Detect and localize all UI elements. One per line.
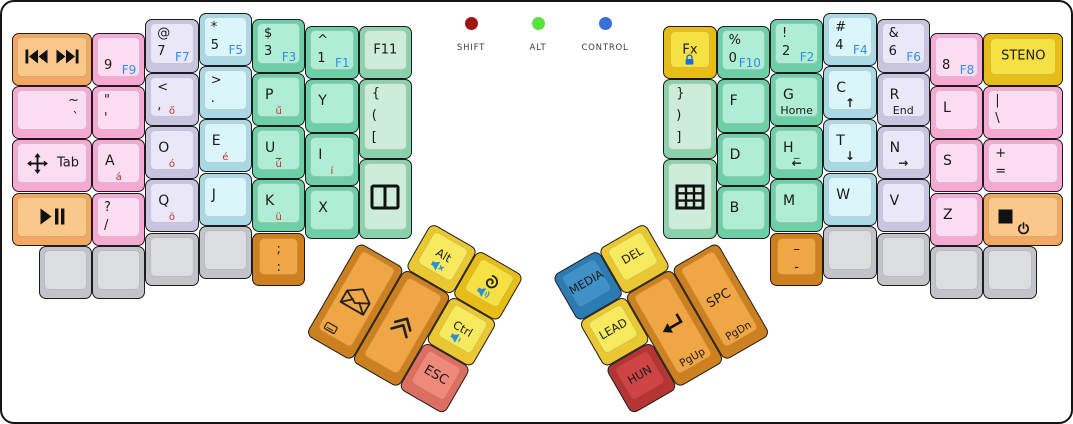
key-j-top: J — [204, 177, 247, 217]
lock-icon — [671, 54, 708, 66]
key-slash-top: ?/ — [97, 197, 140, 237]
key-6-top: &6F6 — [882, 23, 925, 63]
key-u-legend: _ — [258, 147, 299, 158]
key-p-top: Pű — [257, 77, 300, 117]
key-stop-power[interactable] — [983, 193, 1063, 246]
key-k[interactable]: Kü — [252, 179, 305, 232]
key-7-top: @7F7 — [150, 23, 193, 63]
key-comma-top: <,ő — [150, 77, 193, 117]
key-close-brackets-legend: ) — [676, 109, 681, 122]
key-1-legend: ^ — [317, 34, 328, 47]
key-8-legend: 8 — [942, 59, 950, 72]
key-6[interactable]: &6F6 — [877, 19, 930, 72]
key-stop-power-top — [988, 197, 1058, 237]
key-f-legend: F — [730, 94, 738, 108]
key-z-legend: Z — [943, 208, 953, 222]
key-g[interactable]: GHome — [770, 73, 823, 126]
key-b[interactable]: B — [717, 186, 770, 239]
key-c-legend: ↑ — [829, 97, 870, 109]
key-u[interactable]: U_ú — [252, 126, 305, 179]
key-semicolon[interactable]: ;: — [252, 233, 305, 286]
key-plus-legend: + — [995, 147, 1006, 160]
key-open-brackets-top: {([ — [364, 83, 407, 150]
key-z-top: Z — [935, 197, 978, 237]
key-j-legend: J — [212, 188, 216, 202]
key-pipe-top: |\ — [988, 90, 1058, 130]
key-plus[interactable]: += — [983, 139, 1063, 192]
key-y-legend: Y — [318, 94, 327, 108]
key-period-legend: > — [211, 74, 222, 87]
key-k-legend: K — [265, 194, 274, 208]
key-v-top: V — [882, 183, 925, 223]
key-e[interactable]: Eé — [199, 119, 252, 172]
key-j[interactable]: J — [199, 173, 252, 226]
key-blank-l2-top — [97, 250, 140, 290]
key-o[interactable]: Oó — [145, 126, 198, 179]
alt-led — [532, 17, 545, 30]
key-steno-top: STENO — [990, 38, 1056, 75]
key-i-top: Ií — [310, 137, 353, 177]
key-3-legend: 3 — [264, 45, 272, 58]
key-alt-top: Alt — [417, 230, 470, 282]
key-o-top: Oó — [150, 130, 193, 170]
key-period-legend: . — [211, 92, 215, 105]
key-d-legend: D — [730, 148, 741, 162]
key-p-legend: ű — [258, 107, 299, 117]
key-5-legend: 5 — [211, 39, 219, 52]
key-u-legend: ú — [258, 160, 299, 170]
key-4-top: #4F4 — [828, 17, 871, 57]
key-close-brackets-top: })] — [668, 83, 711, 150]
key-r[interactable]: REnd — [877, 73, 930, 126]
key-y[interactable]: Y — [305, 79, 358, 132]
key-semicolon-top: ;: — [259, 238, 298, 275]
key-c-top: C↑ — [828, 70, 871, 110]
key-grid[interactable] — [663, 159, 716, 239]
next-track-icon — [56, 49, 79, 64]
key-4[interactable]: #4F4 — [823, 13, 876, 66]
key-g-legend: Home — [776, 105, 817, 116]
key-h-legend: ← — [776, 157, 817, 169]
key-9[interactable]: 9F9 — [92, 33, 145, 86]
key-a-legend: á — [98, 173, 139, 183]
key-b-legend: B — [730, 201, 740, 215]
key-1[interactable]: ^1F1 — [305, 26, 358, 79]
key-blank-l1-top — [44, 250, 87, 290]
key-n-legend: N — [890, 141, 900, 155]
key-r-top: REnd — [882, 77, 925, 117]
key-c-legend: C — [836, 81, 846, 95]
key-comma-legend: ő — [151, 107, 192, 117]
key-g-legend: G — [783, 88, 794, 102]
key-6-legend: F6 — [906, 51, 921, 63]
key-v[interactable]: V — [877, 179, 930, 232]
key-0-legend: F10 — [739, 57, 761, 69]
key-del-legend: DEL — [614, 242, 652, 271]
key-blank-l1[interactable] — [39, 246, 92, 299]
key-blank-r1[interactable] — [823, 226, 876, 279]
key-close-brackets-legend: } — [676, 87, 684, 100]
key-k-top: Kü — [257, 183, 300, 223]
key-esc-legend: ESC — [417, 360, 456, 390]
grid-icon — [669, 164, 710, 229]
key-play-pause-top — [17, 197, 87, 237]
key-blank-l4-top — [204, 230, 247, 270]
keyboard-board: 9F9@7F7*5F5$3F3^1F1F11~`"'<,ő>.PűY{([Tab… — [2, 2, 1071, 422]
key-comma[interactable]: <,ő — [145, 73, 198, 126]
power-icon — [989, 223, 1057, 235]
key-l-top: L — [935, 90, 978, 130]
key-pipe[interactable]: |\ — [983, 86, 1063, 139]
key-w-legend: W — [836, 188, 850, 202]
key-f[interactable]: F — [717, 79, 770, 132]
key-blank-l2[interactable] — [92, 246, 145, 299]
key-0[interactable]: %0F10 — [717, 26, 770, 79]
key-blank-r3-top — [935, 250, 978, 290]
key-e-legend: E — [212, 134, 221, 148]
key-q-legend: ö — [151, 213, 192, 223]
key-blank-r4-top — [988, 250, 1031, 290]
key-a-top: Aá — [97, 143, 140, 183]
key-p[interactable]: Pű — [252, 73, 305, 126]
keyboard-layout-figure: 9F9@7F7*5F5$3F3^1F1F11~`"'<,ő>.PűY{([Tab… — [0, 0, 1073, 424]
key-debian-top — [463, 257, 516, 309]
key-s[interactable]: S — [930, 139, 983, 192]
key-9-legend: F9 — [122, 64, 137, 76]
key-blank-l3[interactable] — [145, 233, 198, 286]
key-1-legend: 1 — [317, 52, 325, 65]
key-t[interactable]: T↓ — [823, 119, 876, 172]
key-x[interactable]: X — [305, 186, 358, 239]
shift-led — [465, 17, 478, 30]
key-blank-l3-top — [150, 237, 193, 277]
key-lead-legend: LEAD — [594, 315, 632, 344]
key-f11[interactable]: F11 — [359, 26, 412, 79]
key-tilde-legend: ` — [73, 112, 80, 125]
key-q-legend: Q — [158, 194, 169, 208]
key-open-brackets-legend: ( — [372, 109, 377, 122]
key-plus-legend: = — [995, 165, 1006, 178]
key-quote-top: "' — [97, 90, 140, 130]
key-8-legend: F8 — [960, 64, 975, 76]
key-2-legend: ! — [782, 27, 787, 40]
key-u-top: U_ú — [257, 130, 300, 170]
key-y-top: Y — [310, 83, 353, 123]
key-blank-l4[interactable] — [199, 226, 252, 279]
key-5-legend: * — [211, 21, 218, 34]
key-t-legend: ↓ — [829, 150, 870, 162]
key-f11-legend: F11 — [365, 44, 406, 57]
key-period-top: >. — [204, 70, 247, 110]
key-x-legend: X — [318, 201, 328, 215]
key-i-legend: í — [311, 167, 352, 177]
key-hun-legend: HUN — [621, 361, 659, 390]
key-blank-r2[interactable] — [877, 233, 930, 286]
key-grid-top — [668, 163, 711, 230]
key-h-top: H_← — [775, 130, 818, 170]
key-l-legend: L — [943, 101, 951, 115]
key-open-brackets[interactable]: {([ — [359, 79, 412, 159]
key-t-legend: T — [836, 134, 845, 148]
key-comma-legend: < — [157, 81, 168, 94]
key-3-legend: $ — [264, 27, 272, 40]
split-window-icon — [365, 164, 406, 229]
key-pipe-legend: | — [995, 94, 999, 107]
key-v-legend: V — [890, 194, 900, 208]
key-8-top: 8F8 — [935, 37, 978, 77]
key-steno-legend: STENO — [991, 50, 1055, 63]
prev-track-icon — [25, 49, 48, 64]
key-minus-top: –- — [777, 238, 816, 275]
key-s-legend: S — [943, 154, 952, 168]
control-led — [599, 17, 612, 30]
key-fx[interactable]: Fx — [663, 26, 716, 79]
key-tab-legend: Tab — [57, 157, 79, 170]
key-q[interactable]: Qö — [145, 179, 198, 232]
key-3-legend: F3 — [282, 51, 297, 63]
key-o-legend: O — [158, 141, 169, 155]
key-media-top: MEDIA — [560, 257, 613, 309]
key-fx-top: Fx — [670, 31, 709, 68]
key-7-legend: 7 — [157, 45, 165, 58]
key-7[interactable]: @7F7 — [145, 19, 198, 72]
key-8[interactable]: 8F8 — [930, 33, 983, 86]
key-b-top: B — [722, 190, 765, 230]
key-space-legend: PgDn — [724, 320, 753, 343]
key-t-top: T↓ — [828, 123, 871, 163]
key-6-legend: 6 — [889, 45, 897, 58]
key-open-brackets-legend: { — [372, 87, 380, 100]
key-w-top: W — [828, 177, 871, 217]
key-media-prev-next-icons — [18, 38, 86, 76]
key-7-legend: F7 — [175, 51, 190, 63]
key-slash[interactable]: ?/ — [92, 193, 145, 246]
key-1-legend: F1 — [335, 57, 350, 69]
key-media-prev-next[interactable] — [12, 33, 92, 86]
key-5-top: *5F5 — [204, 17, 247, 57]
key-7-legend: @ — [157, 27, 170, 40]
key-blank-r3[interactable] — [930, 246, 983, 299]
key-h[interactable]: H_← — [770, 126, 823, 179]
key-z[interactable]: Z — [930, 193, 983, 246]
key-5[interactable]: *5F5 — [199, 13, 252, 66]
key-split-window[interactable] — [359, 159, 412, 239]
key-tab-top: Tab — [17, 143, 87, 183]
key-quote-legend: ' — [104, 112, 108, 125]
key-blank-r4[interactable] — [983, 246, 1036, 299]
key-p-legend: P — [265, 88, 273, 102]
key-r-legend: R — [890, 88, 900, 102]
key-minus-legend: - — [778, 261, 815, 274]
key-d[interactable]: D — [717, 133, 770, 186]
key-r-legend: End — [883, 105, 924, 116]
key-m-legend: M — [783, 194, 795, 208]
key-plus-top: += — [988, 143, 1058, 183]
key-tilde-top: ~` — [17, 90, 87, 130]
key-semicolon-legend: : — [260, 261, 297, 274]
key-close-brackets[interactable]: })] — [663, 79, 716, 159]
key-pipe-legend: \ — [995, 112, 999, 125]
key-slash-legend: / — [104, 219, 108, 232]
key-steno[interactable]: STENO — [983, 33, 1063, 86]
key-n-legend: → — [883, 157, 924, 169]
key-o-legend: ó — [151, 160, 192, 170]
key-close-brackets-legend: ] — [676, 131, 681, 144]
key-minus-legend: – — [778, 243, 815, 256]
key-e-legend: é — [205, 153, 246, 163]
control-led-label: CONTROL — [560, 43, 650, 53]
key-c[interactable]: C↑ — [823, 66, 876, 119]
key-g-top: GHome — [775, 77, 818, 117]
key-9-top: 9F9 — [97, 37, 140, 77]
key-i-legend: I — [318, 148, 322, 162]
key-quote[interactable]: "' — [92, 86, 145, 139]
key-f-top: F — [722, 83, 765, 123]
key-n-top: N→ — [882, 130, 925, 170]
key-w[interactable]: W — [823, 173, 876, 226]
key-d-top: D — [722, 137, 765, 177]
key-q-top: Qö — [150, 183, 193, 223]
play-pause-icon — [18, 198, 86, 236]
key-m-top: M — [775, 183, 818, 223]
key-5-legend: F5 — [228, 44, 243, 56]
key-0-legend: % — [729, 34, 741, 47]
key-s-top: S — [935, 143, 978, 183]
key-space-legend: SPC — [700, 284, 739, 314]
key-2-top: !2F2 — [775, 23, 818, 63]
key-x-top: X — [310, 190, 353, 230]
key-2[interactable]: !2F2 — [770, 19, 823, 72]
key-4-legend: 4 — [835, 39, 843, 52]
key-slash-legend: ? — [104, 201, 111, 214]
move-icon — [27, 144, 48, 182]
key-6-legend: & — [889, 27, 899, 40]
key-1-top: ^1F1 — [310, 30, 353, 70]
key-hun-top: HUN — [614, 349, 667, 401]
key-minus[interactable]: –- — [770, 233, 823, 286]
key-m[interactable]: M — [770, 179, 823, 232]
key-4-legend: # — [835, 21, 846, 34]
key-tilde[interactable]: ~` — [12, 86, 92, 139]
key-l[interactable]: L — [930, 86, 983, 139]
key-n[interactable]: N→ — [877, 126, 930, 179]
key-del-top: DEL — [607, 230, 660, 282]
key-semicolon-legend: ; — [260, 243, 297, 256]
key-4-legend: F4 — [853, 44, 868, 56]
key-media-prev-next-top — [17, 37, 87, 77]
key-e-top: Eé — [204, 123, 247, 163]
key-2-legend: 2 — [782, 45, 790, 58]
key-a[interactable]: Aá — [92, 139, 145, 192]
key-0-legend: 0 — [729, 52, 737, 65]
key-period[interactable]: >. — [199, 66, 252, 119]
key-media-legend: MEDIA — [568, 269, 606, 298]
key-tab[interactable]: Tab — [12, 139, 92, 192]
key-split-window-top — [364, 163, 407, 230]
key-play-pause[interactable] — [12, 193, 92, 246]
key-2-legend: F2 — [800, 51, 815, 63]
key-9-legend: 9 — [104, 59, 112, 72]
key-k-legend: ü — [258, 213, 299, 223]
key-quote-legend: " — [104, 94, 110, 107]
key-3-top: $3F3 — [257, 23, 300, 63]
key-blank-r2-top — [882, 237, 925, 277]
key-i[interactable]: Ií — [305, 133, 358, 186]
key-tilde-legend: ~ — [68, 94, 79, 107]
key-f11-top: F11 — [364, 30, 407, 70]
key-blank-r1-top — [828, 230, 871, 270]
key-open-brackets-legend: [ — [372, 131, 377, 144]
key-a-legend: A — [105, 154, 115, 168]
key-3[interactable]: $3F3 — [252, 19, 305, 72]
key-0-top: %0F10 — [722, 30, 765, 70]
key-lead-top: LEAD — [587, 303, 640, 355]
